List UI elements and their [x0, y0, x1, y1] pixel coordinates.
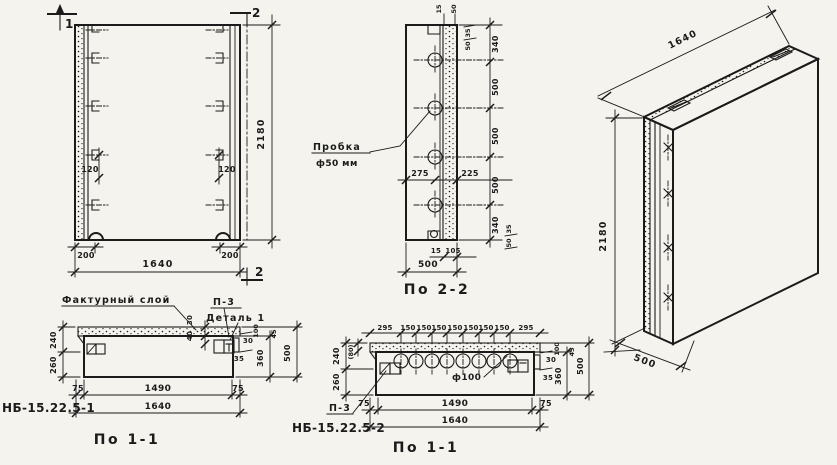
anchor-marks-left	[86, 25, 108, 210]
panel-mark-2: НБ-15.22.5-2	[292, 421, 385, 435]
top-dim-150: 150	[478, 324, 493, 332]
dim-height: 2180	[256, 118, 267, 149]
blueprint-page: { "drawing": { "background": "#f4f3ee", …	[0, 0, 837, 465]
section-number: 2	[255, 265, 263, 279]
top-dim-150: 150	[494, 324, 509, 332]
iso-anchor-marks	[664, 135, 673, 310]
dim-200-right: 200	[221, 251, 239, 260]
front-elevation-view: 2 2 1 120 120 2180	[48, 4, 280, 285]
dim-120-right: 120	[218, 165, 236, 174]
iso-dim-depth: 500	[632, 352, 658, 371]
dim-260: 260	[49, 356, 58, 374]
plug-label-text: Пробка	[313, 142, 361, 153]
dim-240: 240	[332, 347, 341, 365]
dim-500: 500	[576, 357, 585, 375]
dim-seg-340-bottom: 340	[491, 216, 500, 234]
top-dim-150: 150	[463, 324, 478, 332]
section-mark-2-top: 2	[231, 6, 260, 26]
dim-275: 275	[411, 169, 429, 178]
detail-label: Деталь 1	[206, 313, 265, 324]
dim-360: 360	[554, 367, 563, 385]
facing-layer-label: Фактурный слой	[62, 295, 170, 306]
plug-label: Пробка ф50 мм	[312, 111, 430, 169]
dim-top-side-35: 35	[464, 28, 472, 38]
top-dim-150: 150	[447, 324, 462, 332]
dim-75-left: 75	[72, 384, 84, 393]
facing-layer-strip	[78, 327, 240, 336]
dim-240: 240	[49, 331, 58, 349]
dim-bottom-side-50: 50	[505, 238, 513, 248]
dim-1640: 1640	[145, 402, 172, 412]
top-dim-150: 150	[400, 324, 415, 332]
dim-75-right: 75	[232, 384, 244, 393]
top-dim-295-left: 295	[377, 324, 392, 332]
section-2-2-view: Пробка ф50 мм 15 50 35 50 340 500 500 50…	[312, 4, 517, 298]
dim-bottom-15: 15	[431, 247, 441, 255]
section-1-1-left-caption: По 1-1	[94, 432, 161, 448]
embedded-insert-right	[508, 360, 528, 372]
dim-bottom-side-35: 35	[505, 224, 513, 234]
section-1-1-middle-caption: По 1-1	[393, 440, 460, 456]
dim-seg-500-a: 500	[491, 78, 500, 96]
facing-layer-section	[443, 25, 457, 240]
lifting-loop-right	[216, 233, 230, 240]
iso-dim-width: 1640	[666, 28, 699, 52]
hole-label: ф100	[452, 373, 481, 383]
section-number: 1	[65, 17, 73, 31]
lifting-loop-left	[89, 233, 103, 240]
embedded-insert-left	[87, 344, 105, 354]
dim-depth-500: 500	[418, 260, 438, 270]
dim-top-15: 15	[435, 4, 443, 14]
panel-mark-1: НБ-15.22.5-1	[2, 401, 95, 415]
dim-35: 35	[543, 374, 553, 382]
detail-ref-label: П-3	[329, 403, 351, 414]
dim-500: 500	[283, 344, 292, 362]
section-1-1-left-view: Фактурный слой П-3 Деталь 1 30 40 240 26…	[2, 295, 302, 448]
anchor-marks-right	[206, 25, 228, 210]
detail-ref-label: П-3	[213, 297, 235, 308]
embedded-insert-left	[380, 363, 400, 374]
section-2-2-caption: По 2-2	[404, 282, 471, 298]
embedded-insert-right	[214, 340, 234, 353]
iso-dim-height: 2180	[598, 220, 609, 251]
dim-120-left: 120	[81, 165, 99, 174]
dim-30-layer: 30	[186, 315, 194, 325]
dim-200-left: 200	[77, 251, 95, 260]
dim-1490: 1490	[145, 384, 172, 394]
top-dim-150: 150	[416, 324, 431, 332]
dim-top-50: 50	[450, 4, 458, 14]
top-dim-295-right: 295	[518, 324, 533, 332]
section-mark-2-bottom: 2	[242, 265, 263, 285]
dim-1640: 1640	[442, 416, 469, 426]
dim-360: 360	[256, 349, 265, 367]
dim-75-right: 75	[540, 399, 552, 408]
dim-width: 1640	[142, 259, 173, 270]
section-number: 2	[252, 6, 260, 20]
dim-40: 40	[186, 331, 194, 341]
facing-layer-edge	[75, 25, 84, 240]
section-1-1-middle-view: 295 150 150 150 150 150 150 150 295	[292, 324, 594, 456]
dim-260: 260	[332, 373, 341, 391]
top-dim-150: 150	[431, 324, 446, 332]
dim-100: 100	[553, 342, 561, 356]
dim-30: 30	[546, 356, 556, 364]
iso-facing-strip-top	[644, 46, 795, 120]
dim-seg-500-c: 500	[491, 176, 500, 194]
dim-225: 225	[461, 169, 479, 178]
plug-size-text: ф50 мм	[316, 159, 358, 169]
dim-seg-500-b: 500	[491, 127, 500, 145]
isometric-view: 1640 2180 500	[598, 6, 818, 372]
dim-seg-340-top: 340	[491, 35, 500, 53]
facing-layer-strip	[370, 343, 540, 352]
section-mark-1-top-left: 1	[48, 4, 76, 31]
iso-top-face	[644, 46, 818, 130]
dim-1490: 1490	[442, 399, 469, 409]
dim-80: (80)	[347, 344, 355, 359]
dim-top-side-50: 50	[464, 41, 472, 51]
drawing-canvas: 2 2 1 120 120 2180	[0, 0, 837, 465]
dim-bottom-105: 105	[445, 247, 460, 255]
iso-front-face	[673, 59, 818, 344]
dim-35: 35	[234, 355, 244, 363]
